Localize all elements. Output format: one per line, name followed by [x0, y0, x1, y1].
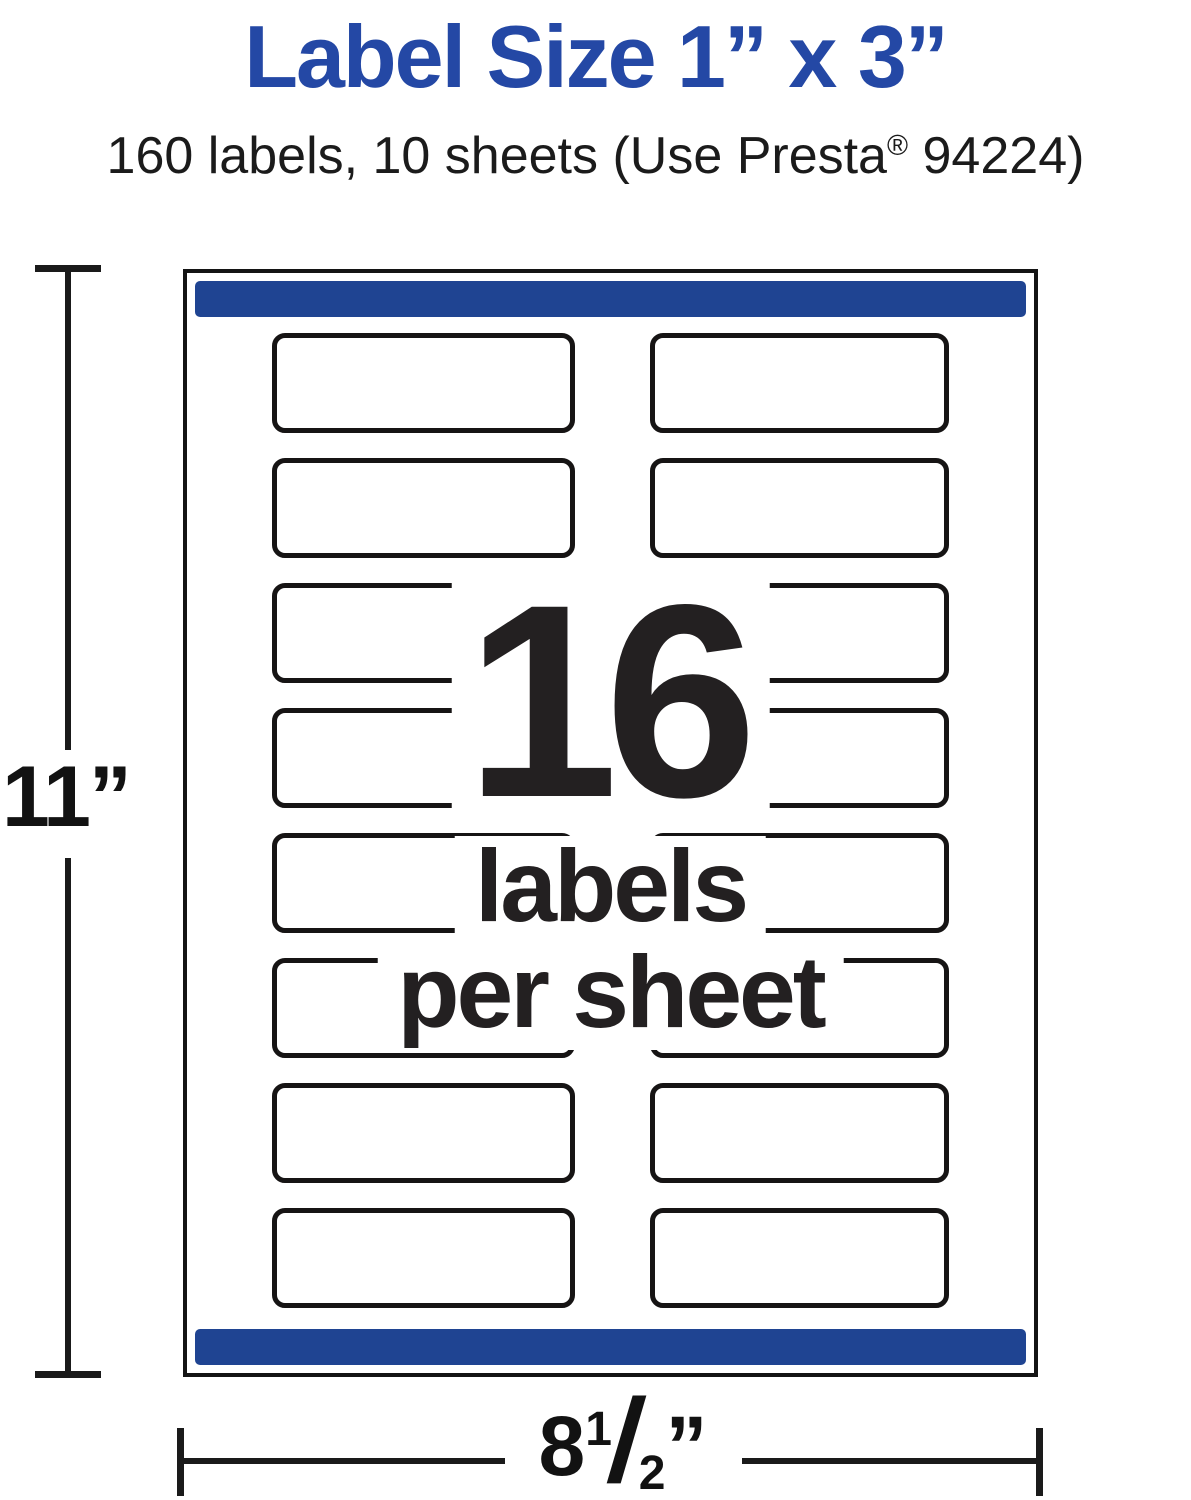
- width-unit: ”: [665, 1399, 707, 1493]
- label-cell: [272, 333, 575, 433]
- width-whole: 8: [539, 1399, 586, 1493]
- sheet-bottom-bar: [195, 1329, 1026, 1365]
- sheet-top-bar: [195, 281, 1026, 317]
- callout-per-sheet-line: per sheet: [377, 944, 844, 1050]
- width-dim-line-right: [742, 1458, 1040, 1464]
- label-cell: [272, 1083, 575, 1183]
- callout-labels-line: labels: [377, 836, 844, 942]
- page-title: Label Size 1” x 3”: [0, 6, 1191, 108]
- width-dim-label: 81/2”: [473, 1398, 773, 1500]
- width-fraction-denominator: 2: [639, 1447, 666, 1500]
- height-dim-cap-bottom: [35, 1371, 101, 1378]
- registered-mark: ®: [887, 130, 908, 162]
- labels-count: 16: [452, 578, 770, 830]
- label-cell: [272, 1208, 575, 1308]
- per-sheet-word: per sheet: [377, 944, 844, 1050]
- subtitle-text: 160 labels, 10 sheets (Use Presta: [107, 127, 887, 185]
- center-callout: 16 labels per sheet: [377, 578, 844, 1050]
- height-dim-label: 11”: [2, 748, 162, 847]
- width-dim-line-left: [180, 1458, 505, 1464]
- label-sheet: 16 labels per sheet: [183, 269, 1038, 1377]
- subtitle-sku: 94224): [908, 127, 1084, 185]
- page-subtitle: 160 labels, 10 sheets (Use Presta® 94224…: [0, 126, 1191, 186]
- width-fraction-numerator: 1: [585, 1403, 612, 1456]
- label-cell: [272, 458, 575, 558]
- width-dim-cap-right: [1036, 1428, 1043, 1496]
- label-cell: [650, 458, 949, 558]
- label-cell: [650, 333, 949, 433]
- label-cell: [650, 1208, 949, 1308]
- height-dim-line-bottom: [65, 858, 71, 1374]
- height-dim-line-top: [65, 269, 71, 750]
- label-cell: [650, 1083, 949, 1183]
- labels-word: labels: [455, 836, 766, 942]
- page: Label Size 1” x 3” 160 labels, 10 sheets…: [0, 0, 1191, 1500]
- callout-count-line: 16: [377, 578, 844, 830]
